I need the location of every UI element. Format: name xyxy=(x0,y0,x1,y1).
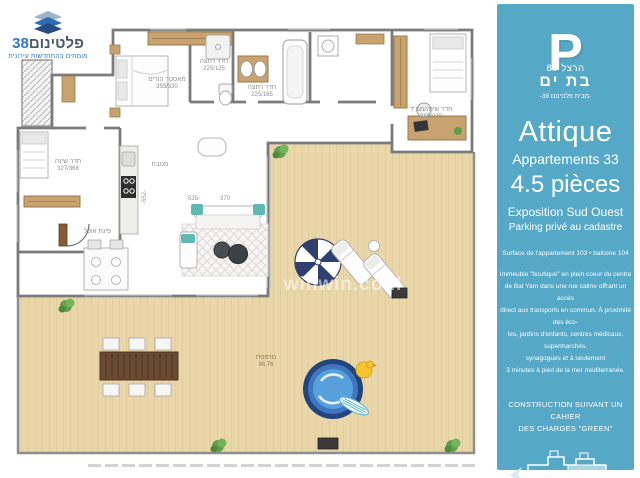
dim-kitchen: -552- xyxy=(142,182,148,212)
room-name: מרפסת xyxy=(256,354,276,361)
orientation-arrow-icon xyxy=(510,467,522,478)
dim-living-width: -535- xyxy=(176,196,210,202)
room-label-mamad: חדר שינה/ממ"ד 360/270 xyxy=(398,106,464,122)
room-name: פינת אוכל xyxy=(84,228,111,235)
construction-note-line: CONSTRUCTION SUIVANT UN CAHIER xyxy=(497,399,634,423)
dining-table xyxy=(84,248,128,290)
planter-box xyxy=(318,438,338,449)
description-line: synagogues et à seulement xyxy=(497,353,634,365)
room-dim: 360/270 xyxy=(398,114,464,122)
dim-living-depth: 370 xyxy=(212,196,238,202)
sofa-seat xyxy=(196,215,260,229)
project-description: Immeuble "boutique" en plein coeur du ce… xyxy=(497,269,634,377)
room-name: מטבח xyxy=(152,161,169,168)
room-dim: 225/165 xyxy=(240,92,284,100)
room-name: חדר רחצה xyxy=(248,84,276,91)
kitchen-sink xyxy=(122,152,135,166)
stairwell-shaft xyxy=(22,60,52,126)
room-dim: 355/330 xyxy=(136,84,198,92)
description-line: de Bat Yam dans une rue calme offrant un… xyxy=(497,281,634,305)
room-label-master: מאסטר הורים 355/330 xyxy=(136,76,198,92)
room-dim: 96.76 xyxy=(240,362,292,370)
parking-note: Parking privé au cadastre xyxy=(497,222,634,233)
flyer-page: פלטינום38 מומחים בהתחדשות עירונית xyxy=(0,0,640,478)
nightstand xyxy=(110,108,120,117)
description-line: direct aux transports en commun. À proxi… xyxy=(497,305,634,329)
sofa-pillow xyxy=(191,204,203,215)
coffee-table xyxy=(229,245,248,264)
nightstand xyxy=(110,45,120,54)
room-dim: 225/125 xyxy=(192,66,236,74)
armchair xyxy=(198,138,226,156)
info-sidebar: P הרצל 88 בת ים -מבית פלטינום 38- Attiqu… xyxy=(497,4,634,470)
exposition-note: Exposition Sud Ouest xyxy=(497,205,634,219)
washing-machine xyxy=(318,36,338,56)
unit-type-title: Attique xyxy=(497,116,634,149)
floor-plan xyxy=(0,0,485,478)
room-label-bedroom: חדר שינה 327/368 xyxy=(40,158,96,174)
outdoor-dining-set xyxy=(100,338,178,396)
description-line: 3 minutes à pied de la mer méditerranée. xyxy=(497,365,634,377)
fine-print-line xyxy=(88,464,476,467)
room-label-terrace: מרפסת 96.76 xyxy=(240,354,292,370)
room-name: חדר שינה/ממ"ד xyxy=(410,106,453,113)
watermark: winwin.co.il xyxy=(243,274,443,296)
construction-note-line: DES CHARGES "GREEN" xyxy=(497,423,634,435)
room-label-bath1: חדר רחצה 225/125 xyxy=(192,58,236,74)
side-table xyxy=(369,241,380,252)
room-name: חדר שינה xyxy=(55,158,81,165)
kitchen-fixtures xyxy=(120,146,138,234)
project-logo-city: בת ים xyxy=(497,74,634,91)
key-plan-drawing xyxy=(510,445,622,478)
room-label-bath2: חדר רחצה 225/165 xyxy=(240,84,284,100)
description-line: Immeuble "boutique" en plein coeur du ce… xyxy=(497,269,634,281)
construction-note: CONSTRUCTION SUIVANT UN CAHIER DES CHARG… xyxy=(497,399,634,435)
apartment-number: Appartements 33 xyxy=(497,151,634,167)
desk-plant-icon xyxy=(454,127,462,135)
description-line: les, jardins d'enfants, centres médicaux… xyxy=(497,329,634,353)
project-logo-byline: -מבית פלטינום 38- xyxy=(497,93,634,100)
rooms-count: 4.5 pièces xyxy=(497,171,634,199)
sofa-pillow xyxy=(253,204,265,215)
books xyxy=(413,120,428,132)
dresser xyxy=(62,76,75,102)
shelf xyxy=(356,34,384,44)
coffee-table xyxy=(214,242,230,258)
room-name: מאסטר הורים xyxy=(148,76,186,83)
key-plan xyxy=(497,445,634,478)
room-label-dining: פינת אוכל xyxy=(70,228,125,236)
room-label-kitchen: מטבח xyxy=(142,161,178,169)
dining-set xyxy=(84,240,128,290)
shower xyxy=(206,35,230,59)
room-dim: 327/368 xyxy=(40,166,96,174)
surface-line: Surface de l'appartement 103 • balcone 1… xyxy=(497,250,634,257)
room-name: חדר רחצה xyxy=(200,58,228,65)
chaise-pillow xyxy=(181,234,195,243)
